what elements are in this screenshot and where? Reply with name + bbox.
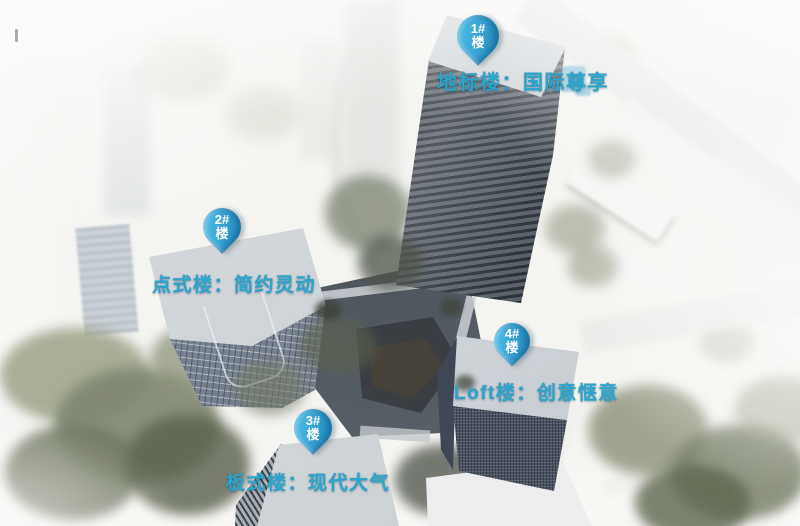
tree-cluster [358,235,423,290]
pin-tower-3[interactable]: 3# 楼 [286,401,340,455]
tree-cluster [225,85,300,140]
tree-cluster [568,245,618,287]
pin-suffix: 楼 [471,36,484,50]
pin-number: 1# [471,22,485,36]
cursor-artifact [15,29,18,42]
pin-tower-2-label: 2# 楼 [203,208,241,246]
label-loft-tower: Loft楼：创意惬意 [454,378,619,405]
pin-number: 4# [505,327,519,341]
pin-suffix: 楼 [505,341,518,355]
label-point-tower: 点式楼：简约灵动 [152,270,316,297]
pin-number: 3# [306,414,320,428]
pin-suffix: 楼 [306,428,319,442]
pin-suffix: 楼 [215,227,228,241]
pin-tower-2[interactable]: 2# 楼 [195,200,249,254]
background-building [75,224,138,336]
label-landmark-tower: 地标楼：国际尊享 [437,66,609,95]
tree-cluster [588,140,636,178]
tree-cluster [235,360,305,415]
tree-cluster [440,298,462,316]
tree-cluster [125,415,250,515]
road [579,279,800,354]
pin-tower-1-label: 1# 楼 [457,15,499,57]
label-slab-tower: 板式楼：现代大气 [226,468,390,495]
tree-cluster [135,35,230,100]
tree-cluster [5,425,140,520]
pin-tower-3-label: 3# 楼 [294,409,332,447]
pin-tower-1[interactable]: 1# 楼 [448,6,507,65]
aerial-rendering-scene: 1# 楼 2# 楼 3# 楼 4# 楼 地标楼：国际尊享 点式楼：简约灵动 板式… [0,0,800,526]
pin-tower-4[interactable]: 4# 楼 [487,316,538,367]
tree-cluster [300,318,375,373]
background-building [104,66,150,216]
pin-tower-4-label: 4# 楼 [494,323,530,359]
pin-number: 2# [215,213,229,227]
tree-cluster [315,300,341,320]
